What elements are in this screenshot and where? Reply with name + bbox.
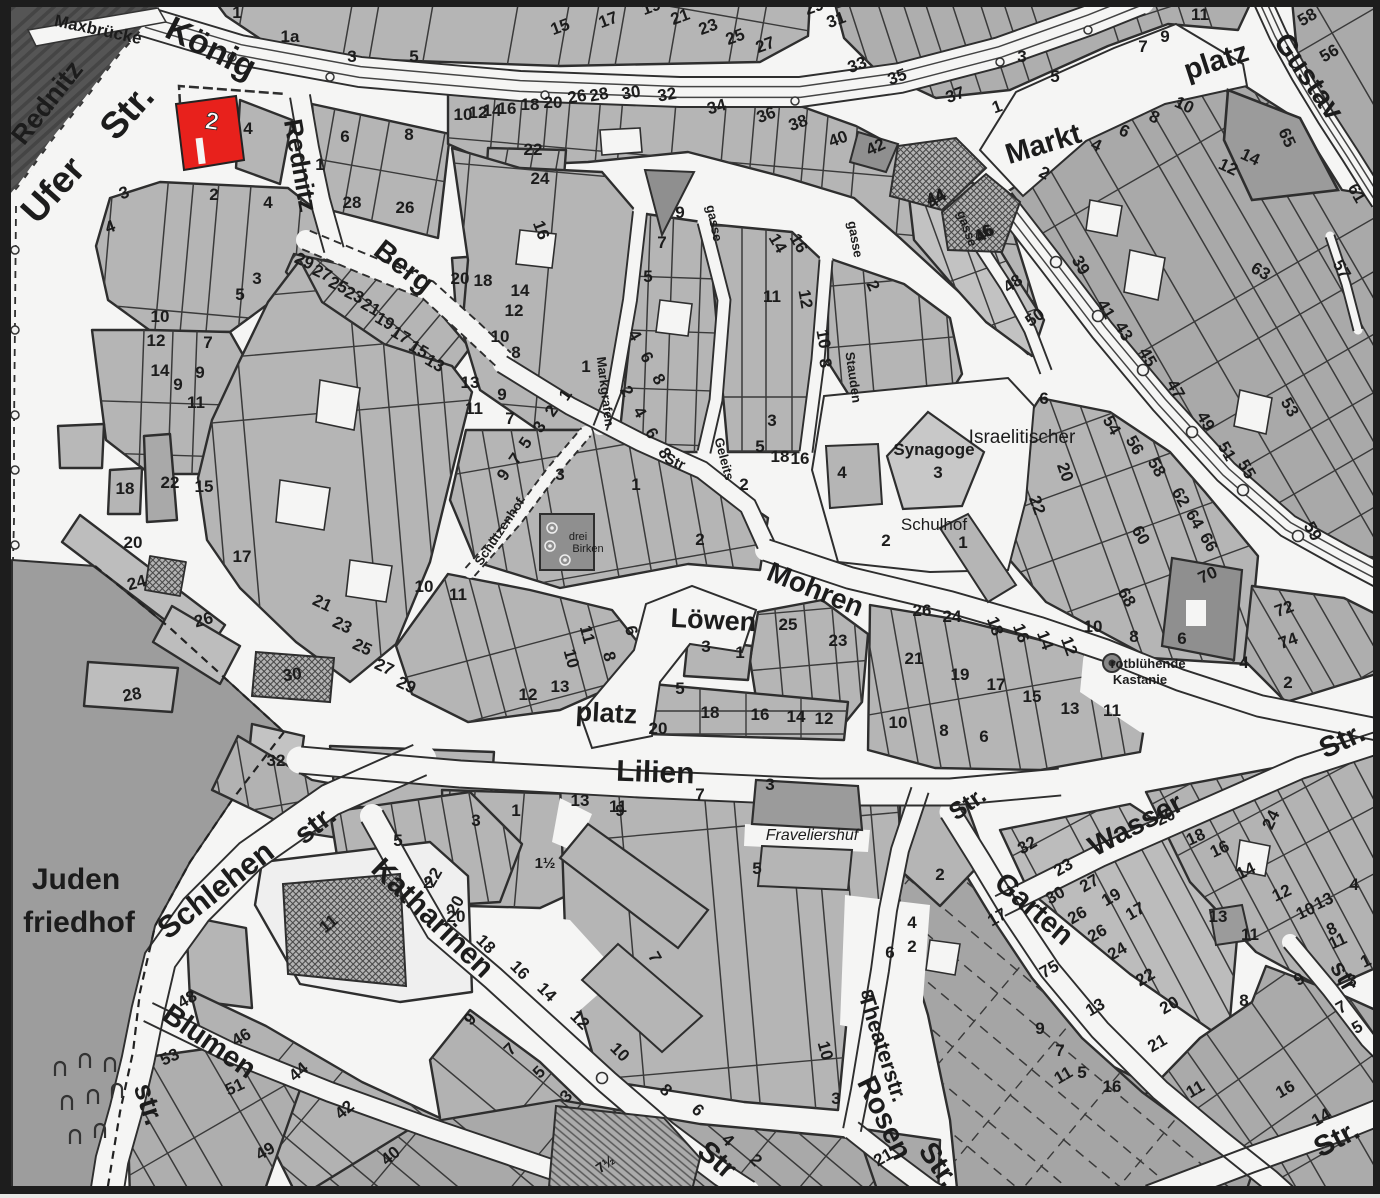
svg-text:1: 1 — [958, 533, 967, 552]
svg-text:Birken: Birken — [572, 543, 603, 555]
svg-text:11: 11 — [1241, 925, 1259, 944]
svg-text:10: 10 — [812, 328, 834, 350]
svg-text:1: 1 — [581, 357, 590, 376]
svg-text:30: 30 — [282, 664, 303, 685]
svg-text:12: 12 — [519, 685, 538, 704]
svg-text:7: 7 — [657, 233, 666, 252]
svg-text:6: 6 — [340, 127, 349, 146]
svg-text:9: 9 — [173, 375, 182, 394]
svg-text:24: 24 — [943, 607, 962, 626]
svg-text:12: 12 — [815, 709, 834, 728]
svg-text:19: 19 — [951, 665, 970, 684]
svg-text:10: 10 — [491, 327, 510, 346]
svg-text:6: 6 — [885, 943, 894, 962]
svg-text:26: 26 — [913, 601, 932, 620]
svg-text:17: 17 — [233, 547, 252, 566]
svg-text:4: 4 — [263, 193, 273, 212]
svg-text:5: 5 — [755, 437, 764, 456]
svg-text:26: 26 — [566, 86, 588, 108]
svg-text:10: 10 — [1084, 617, 1103, 636]
svg-text:11: 11 — [465, 399, 483, 418]
svg-text:2: 2 — [935, 865, 944, 884]
svg-text:30: 30 — [620, 82, 642, 104]
svg-text:8: 8 — [939, 721, 948, 740]
svg-text:2: 2 — [881, 531, 890, 550]
svg-text:5: 5 — [393, 831, 402, 850]
svg-text:platz: platz — [575, 696, 638, 729]
svg-text:10: 10 — [415, 577, 434, 596]
svg-text:17: 17 — [987, 675, 1006, 694]
svg-text:11: 11 — [763, 287, 781, 306]
svg-text:32: 32 — [267, 751, 286, 770]
svg-text:3: 3 — [767, 411, 776, 430]
svg-text:8: 8 — [1239, 991, 1248, 1010]
svg-text:21: 21 — [905, 649, 924, 668]
svg-text:14: 14 — [511, 281, 530, 300]
svg-text:5: 5 — [675, 679, 684, 698]
svg-text:Schulhof: Schulhof — [901, 515, 967, 534]
svg-text:32: 32 — [656, 84, 678, 106]
svg-text:20: 20 — [544, 93, 563, 112]
svg-text:18: 18 — [116, 479, 135, 498]
svg-text:Synagoge: Synagoge — [893, 440, 974, 459]
svg-text:28: 28 — [343, 193, 362, 212]
svg-text:7: 7 — [203, 333, 212, 352]
svg-text:13: 13 — [1209, 907, 1228, 926]
svg-text:4: 4 — [243, 119, 253, 138]
svg-text:3: 3 — [1347, 971, 1356, 990]
svg-text:22: 22 — [161, 473, 180, 492]
svg-text:20: 20 — [649, 719, 668, 738]
svg-text:23: 23 — [829, 631, 848, 650]
svg-text:20: 20 — [451, 269, 470, 288]
svg-text:2: 2 — [209, 185, 218, 204]
svg-text:12: 12 — [505, 301, 524, 320]
svg-text:2: 2 — [1283, 673, 1292, 692]
svg-text:9: 9 — [1035, 1019, 1044, 1038]
svg-text:Israelitischer: Israelitischer — [969, 427, 1076, 448]
svg-text:7: 7 — [505, 409, 514, 428]
svg-text:1: 1 — [511, 801, 520, 820]
svg-text:24: 24 — [531, 169, 550, 188]
svg-text:8: 8 — [404, 125, 413, 144]
svg-text:20: 20 — [124, 533, 143, 552]
svg-text:Juden: Juden — [32, 863, 120, 896]
svg-text:12: 12 — [147, 331, 166, 350]
svg-text:25: 25 — [779, 615, 798, 634]
svg-text:8: 8 — [1129, 627, 1138, 646]
svg-text:13: 13 — [1061, 699, 1080, 718]
svg-text:7: 7 — [695, 785, 704, 804]
svg-text:11: 11 — [1103, 701, 1121, 720]
svg-text:12: 12 — [794, 288, 816, 310]
svg-text:28: 28 — [588, 84, 610, 106]
svg-text:5: 5 — [752, 859, 761, 878]
svg-text:16: 16 — [498, 99, 517, 118]
svg-text:15: 15 — [1023, 687, 1042, 706]
svg-text:3: 3 — [471, 811, 480, 830]
svg-text:13: 13 — [571, 791, 590, 810]
svg-text:3: 3 — [831, 1089, 840, 1108]
svg-text:7: 7 — [1055, 1041, 1064, 1060]
svg-text:11: 11 — [1191, 5, 1209, 24]
svg-text:11: 11 — [449, 585, 467, 604]
svg-text:3: 3 — [555, 465, 564, 484]
svg-text:9: 9 — [1160, 27, 1169, 46]
svg-text:18: 18 — [771, 447, 790, 466]
svg-text:9: 9 — [675, 203, 684, 222]
svg-text:Lilien: Lilien — [616, 755, 695, 791]
svg-text:16: 16 — [1103, 1077, 1122, 1096]
svg-text:5: 5 — [1050, 67, 1059, 86]
svg-text:3: 3 — [347, 47, 356, 66]
svg-text:1: 1 — [315, 155, 324, 174]
svg-text:8: 8 — [511, 343, 520, 362]
svg-text:friedhof: friedhof — [23, 906, 136, 939]
svg-text:14: 14 — [787, 707, 806, 726]
svg-text:1: 1 — [631, 475, 640, 494]
svg-text:13: 13 — [461, 373, 480, 392]
svg-text:Fraveliershuf: Fraveliershuf — [766, 827, 860, 844]
svg-text:4: 4 — [837, 463, 847, 482]
svg-text:2: 2 — [907, 937, 916, 956]
svg-text:2: 2 — [739, 475, 748, 494]
svg-text:15: 15 — [195, 477, 214, 496]
svg-text:1½: 1½ — [535, 855, 556, 872]
svg-text:11: 11 — [187, 393, 205, 412]
svg-text:16: 16 — [791, 449, 810, 468]
svg-text:4: 4 — [1349, 875, 1359, 894]
svg-text:6: 6 — [1039, 389, 1048, 408]
svg-text:3: 3 — [765, 775, 774, 794]
svg-text:9: 9 — [497, 385, 506, 404]
svg-text:28: 28 — [121, 684, 143, 706]
svg-text:9: 9 — [195, 363, 204, 382]
svg-text:18: 18 — [521, 95, 540, 114]
svg-text:6: 6 — [979, 727, 988, 746]
svg-text:22: 22 — [524, 140, 543, 159]
svg-text:3: 3 — [1017, 47, 1026, 66]
svg-text:10: 10 — [889, 713, 908, 732]
svg-text:16: 16 — [751, 705, 770, 724]
svg-text:1a: 1a — [281, 27, 300, 46]
svg-text:Löwen: Löwen — [670, 603, 757, 637]
svg-text:drei: drei — [569, 531, 587, 543]
svg-text:18: 18 — [701, 703, 720, 722]
svg-text:7: 7 — [1138, 37, 1147, 56]
svg-text:3: 3 — [252, 269, 261, 288]
svg-text:6: 6 — [1177, 629, 1186, 648]
svg-text:4: 4 — [907, 913, 917, 932]
svg-text:rotblühende: rotblühende — [1110, 656, 1185, 671]
svg-text:3: 3 — [933, 463, 942, 482]
svg-text:3: 3 — [701, 637, 710, 656]
svg-text:5: 5 — [409, 47, 418, 66]
svg-text:18: 18 — [474, 271, 493, 290]
svg-text:2: 2 — [695, 530, 704, 549]
svg-text:5: 5 — [643, 267, 652, 286]
svg-text:26: 26 — [396, 198, 415, 217]
svg-text:1: 1 — [735, 643, 744, 662]
svg-text:14: 14 — [151, 361, 170, 380]
svg-text:10: 10 — [151, 307, 170, 326]
svg-text:4: 4 — [1239, 653, 1249, 672]
svg-text:5: 5 — [235, 285, 244, 304]
svg-text:Kastanie: Kastanie — [1113, 672, 1167, 687]
svg-text:13: 13 — [551, 677, 570, 696]
svg-text:11: 11 — [609, 797, 627, 816]
svg-text:5: 5 — [1077, 1063, 1086, 1082]
